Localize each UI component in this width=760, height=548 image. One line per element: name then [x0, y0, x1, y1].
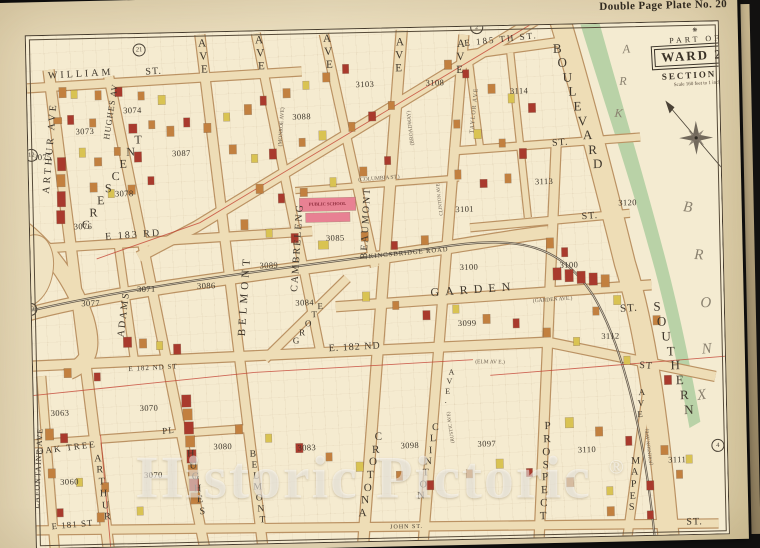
building-footprint	[167, 126, 174, 136]
plate-number: Double Page Plate No. 20	[599, 0, 727, 13]
building-footprint	[546, 238, 553, 248]
building-footprint	[319, 131, 326, 140]
building-footprint	[595, 427, 602, 436]
block-number: 3070	[140, 403, 159, 413]
building-footprint	[45, 429, 53, 440]
block-number: 3112	[601, 331, 620, 341]
building-footprint	[543, 328, 550, 337]
building-footprint	[369, 112, 376, 121]
beaumont-ave-top-suffix: V	[324, 46, 332, 58]
mapes-ave: E	[630, 490, 636, 501]
arthur-ave-bottom: H	[100, 488, 107, 499]
map-cartouche: ❋ PART OF WARD 24 SECTION 11 Scale 160 f…	[630, 24, 730, 90]
building-footprint	[421, 236, 428, 245]
building-footprint	[624, 356, 630, 364]
southern-boulevard: E	[676, 372, 684, 388]
building-footprint	[562, 248, 568, 257]
grote-st: G	[293, 336, 300, 346]
building-footprint	[148, 177, 154, 185]
grote-st: R	[299, 327, 305, 337]
grote-st: E	[317, 301, 323, 311]
clinton-ave-top-suffix: E	[456, 64, 463, 76]
watermark-text: Historic Pictoric	[136, 445, 591, 511]
building-footprint	[664, 375, 671, 384]
boulevard: D	[593, 156, 603, 172]
crescent-ave: C	[112, 169, 120, 184]
building-footprint	[362, 292, 369, 301]
crescent-ave: T	[134, 133, 142, 148]
building-footprint	[251, 154, 257, 162]
building-footprint	[57, 192, 65, 207]
building-footprint	[455, 170, 461, 179]
building-footprint	[57, 175, 65, 187]
william-st-suffix: ST.	[145, 66, 162, 78]
mapes-ave: S	[629, 502, 635, 513]
block-number: 3063	[51, 408, 70, 418]
belmont-ave-top-suffix: V	[199, 50, 207, 62]
building-footprint	[300, 188, 307, 196]
building-footprint	[184, 118, 190, 127]
block-number: 3077	[81, 298, 100, 308]
building-footprint	[647, 511, 653, 519]
clinton-ave-suffix: A	[448, 368, 454, 377]
building-footprint	[385, 156, 391, 164]
building-footprint	[235, 425, 242, 434]
building-footprint	[283, 89, 290, 98]
building-footprint	[139, 339, 146, 348]
building-footprint	[626, 436, 632, 445]
arthur-ave-bottom: T	[99, 476, 105, 487]
building-footprint	[647, 481, 654, 490]
mapes-ave-suffix: A	[638, 387, 645, 397]
cambreleng-ave-top-suffix: E	[258, 60, 265, 72]
building-footprint	[593, 307, 599, 315]
block-number: 3089	[259, 260, 278, 270]
building-footprint	[299, 138, 305, 146]
southern-boulevard: R	[680, 387, 689, 403]
block-number: 3101	[455, 204, 474, 214]
building-footprint	[589, 273, 597, 285]
building-footprint	[483, 314, 490, 323]
st-mid-right: ST.	[581, 210, 598, 222]
beaumont-ave-top-suffix: E	[326, 59, 333, 71]
block-number: 3087	[172, 148, 191, 158]
southern-boulevard: T	[667, 343, 675, 359]
building-footprint	[224, 113, 230, 121]
block-number: 3076	[74, 221, 93, 231]
block-number: 3114	[510, 85, 529, 95]
southern-boulevard: N	[684, 402, 694, 418]
arthur-ave-bottom: U	[102, 500, 109, 511]
building-footprint	[204, 123, 211, 132]
e-182nd-st-right-suffix: ST	[639, 360, 654, 372]
building-footprint	[574, 337, 580, 345]
block-number: 3088	[292, 111, 311, 121]
building-footprint	[184, 422, 193, 434]
building-footprint	[423, 311, 430, 320]
belmont-ave-top-suffix: A	[198, 38, 206, 50]
building-footprint	[661, 445, 668, 454]
road-e-181st-st	[27, 515, 719, 538]
building-footprint	[68, 115, 74, 124]
crescent-ave: S	[105, 181, 112, 196]
building-footprint	[488, 84, 495, 93]
building-footprint	[156, 341, 162, 349]
building-footprint	[138, 92, 144, 100]
park-letter: A	[622, 41, 631, 57]
clinton-ave-suffix: V	[446, 377, 452, 386]
building-footprint	[393, 301, 399, 309]
building-footprint	[60, 434, 67, 443]
building-footprint	[330, 178, 336, 187]
park-letter: R	[619, 74, 627, 89]
building-footprint	[123, 337, 131, 347]
mapes-ave: M	[631, 455, 640, 466]
cartouche-ward: WARD 24	[654, 44, 730, 67]
building-footprint	[182, 395, 191, 407]
building-footprint	[94, 373, 100, 381]
mapes-ave: A	[631, 467, 638, 478]
building-footprint	[158, 95, 165, 104]
building-footprint	[577, 271, 585, 283]
building-footprint	[57, 509, 63, 517]
block-number: 3060	[60, 476, 79, 486]
bronx-letter: N	[701, 341, 713, 359]
building-footprint	[480, 179, 487, 187]
building-footprint	[57, 158, 65, 171]
mapes-ave-suffix: E	[637, 409, 643, 419]
arthur-ave-bottom: A	[94, 453, 101, 464]
building-footprint	[360, 167, 367, 176]
scanned-map-photo: { "plate": { "title": "Double Page Plate…	[0, 0, 760, 548]
public-school-label: PUBLIC SCHOOL	[309, 201, 346, 207]
building-footprint	[114, 147, 120, 155]
building-footprint	[453, 305, 459, 313]
building-footprint	[95, 91, 101, 100]
st-upper-right: ST.	[552, 137, 569, 149]
arthur-ave-bottom: R	[96, 465, 103, 476]
building-footprint	[256, 184, 263, 193]
building-footprint	[505, 174, 511, 183]
building-footprint	[686, 455, 692, 463]
prospect-ave: P	[544, 420, 550, 432]
building-footprint	[278, 194, 284, 203]
crotona-ave-top-suffix: V	[395, 49, 403, 61]
crescent-ave: R	[89, 205, 97, 220]
registered-trademark-icon: ®	[609, 457, 624, 479]
building-footprint	[266, 229, 272, 237]
block-number: 3074	[123, 105, 142, 115]
building-footprint	[306, 212, 350, 222]
clinton-ave-suffix: .	[445, 396, 447, 405]
bronx-letter: R	[694, 247, 704, 264]
building-footprint	[499, 139, 505, 147]
crotona-ave-top-suffix: A	[396, 36, 404, 48]
building-footprint	[266, 434, 272, 442]
building-footprint	[528, 103, 535, 112]
belmont-ave-top-suffix: E	[201, 63, 208, 75]
belmont-ave-bottom: T	[260, 516, 266, 526]
park-letter: K	[614, 106, 623, 121]
block-number: 3099	[458, 318, 477, 328]
block-number: 3084	[295, 297, 314, 307]
john-st: JOHN ST.	[390, 524, 423, 531]
block-number: 3108	[425, 77, 444, 87]
block-number: 3078	[115, 188, 134, 198]
building-footprint	[303, 81, 309, 89]
building-footprint	[565, 418, 573, 428]
building-footprint	[174, 344, 181, 354]
building-footprint	[241, 220, 248, 230]
road-minor-street	[510, 53, 528, 218]
building-footprint	[323, 73, 330, 82]
block-number: 3100	[460, 262, 479, 272]
building-footprint	[229, 145, 236, 154]
southern-boulevard: S	[653, 299, 661, 315]
building-footprint	[183, 409, 192, 420]
grote-st: O	[305, 318, 312, 328]
beaumont-ave-top-suffix: A	[323, 33, 331, 45]
building-footprint	[71, 90, 77, 98]
building-footprint	[57, 211, 65, 224]
building-footprint	[129, 124, 137, 133]
building-footprint	[244, 105, 251, 115]
st-bottom-right: ST.	[686, 516, 703, 527]
block-number: 3085	[326, 233, 345, 243]
watermark: Historic Pictoric ®	[136, 444, 623, 513]
mapes-ave-suffix: V	[638, 398, 645, 408]
building-footprint	[94, 158, 101, 166]
building-footprint	[90, 183, 97, 192]
elm-ave-former: (ELM AV E.)	[475, 359, 505, 365]
block-number: 3120	[618, 197, 637, 207]
block-number: 3073	[75, 126, 94, 136]
road-oak-tree-pl	[25, 429, 245, 445]
block-number: 3111	[668, 454, 686, 464]
block-number: 3113	[535, 176, 554, 186]
building-footprint	[269, 149, 276, 159]
building-footprint	[349, 122, 355, 131]
arthur-ave-bottom: R	[104, 511, 111, 522]
building-footprint	[134, 152, 141, 162]
block-number: 3100	[559, 259, 578, 269]
grote-st: T	[311, 310, 317, 320]
building-footprint	[519, 149, 526, 159]
building-footprint	[601, 275, 609, 287]
building-footprint	[391, 241, 397, 249]
building-footprint	[79, 148, 85, 157]
block-number: 3103	[356, 79, 375, 89]
bronx-letter: O	[700, 295, 711, 312]
mapes-ave: P	[631, 479, 637, 490]
clinton-ave-top-suffix: V	[456, 51, 464, 63]
block-number: 3086	[197, 280, 216, 290]
clinton-ave-top-suffix: A	[457, 38, 465, 50]
road-e-182nd-st-west	[25, 342, 548, 366]
building-footprint	[676, 470, 682, 478]
oak-tree-pl-suffix: PL	[162, 425, 175, 436]
building-footprint	[463, 70, 469, 78]
building-footprint	[388, 101, 394, 109]
building-footprint	[260, 96, 266, 105]
building-footprint	[64, 369, 71, 378]
cambreleng-ave-top-suffix: A	[255, 34, 263, 46]
building-footprint	[149, 121, 155, 129]
crotona-ave-bottom: C	[375, 431, 383, 443]
crescent-ave: E	[97, 193, 105, 208]
building-footprint	[513, 319, 519, 328]
clinton-ave-bottom: C	[432, 421, 439, 432]
building-footprint	[48, 469, 55, 478]
block-number: 3071	[137, 284, 156, 294]
cambreleng-ave-top-suffix: V	[256, 47, 264, 59]
clinton-ave-suffix: E	[445, 386, 450, 395]
building-footprint	[444, 60, 451, 69]
building-footprint	[59, 88, 66, 98]
crotona-ave-top-suffix: E	[395, 62, 402, 74]
building-footprint	[342, 64, 348, 73]
garden-st-suffix: ST.	[620, 302, 639, 315]
building-footprint	[454, 120, 460, 128]
building-footprint	[565, 270, 573, 282]
